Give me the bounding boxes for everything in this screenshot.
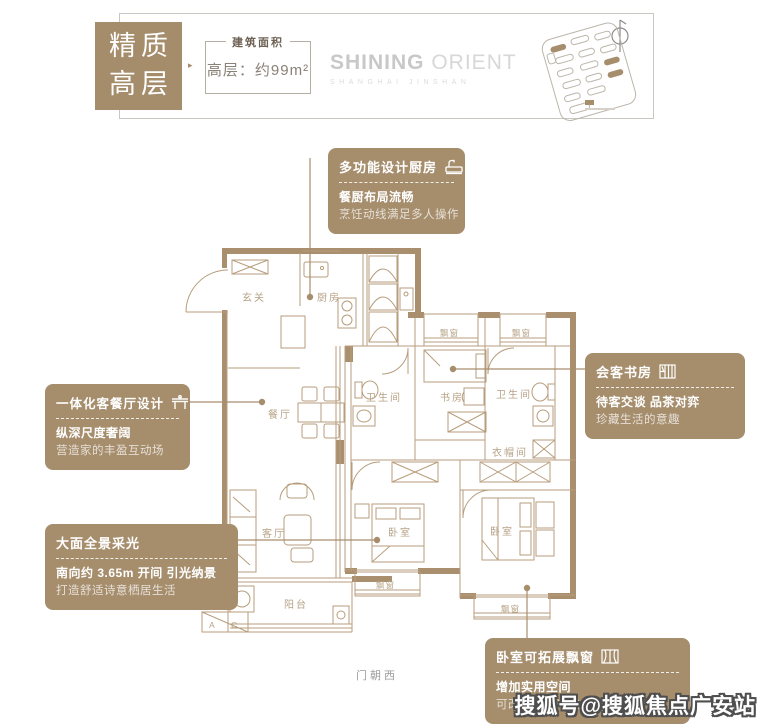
callout-living-bold: 纵深尺度奢阔 xyxy=(56,424,179,443)
ac-label-a: A xyxy=(209,620,216,630)
callout-daylight: 大面全景采光 南向约 3.65m 开间 引光纳景 打造舒适诗意栖居生活 xyxy=(45,524,238,610)
bay-window-label-4: 飘窗 xyxy=(501,604,520,614)
logo-bold: SHINING xyxy=(330,51,425,74)
bay-window-label-1: 飘窗 xyxy=(440,328,459,338)
callout-divider xyxy=(496,672,679,673)
callout-study-title-row: 会客书房 xyxy=(596,362,734,381)
callout-study-title: 会客书房 xyxy=(596,362,652,381)
ac-label-c: C xyxy=(231,620,238,630)
room-label-bath-right: 卫生间 xyxy=(496,388,532,401)
callout-study-light: 珍藏生活的意趣 xyxy=(596,412,734,429)
bookshelf-icon xyxy=(659,364,676,379)
room-label-bath-left: 卫生间 xyxy=(366,391,402,404)
room-label-bedroom-master: 卧室 xyxy=(490,525,514,538)
badge-line-1: 精质 xyxy=(104,28,173,66)
plan-partitions xyxy=(202,251,575,632)
callout-kitchen-light: 烹饪动线满足多人操作 xyxy=(339,207,454,224)
room-label-bedroom-mid: 卧室 xyxy=(388,526,412,539)
callout-kitchen-title-row: 多功能设计厨房 xyxy=(339,157,454,176)
room-label-dining: 餐厅 xyxy=(268,408,292,421)
logo-subtitle: SHANGHAI JINSHAN xyxy=(330,79,517,86)
bay-window-label-2: 飘窗 xyxy=(512,328,531,338)
room-label-cloakroom: 衣帽间 xyxy=(492,446,528,459)
badge-line-2: 高层 xyxy=(104,66,173,104)
bay-window-label-3: 飘窗 xyxy=(376,580,395,590)
arrow-icon: ▸ xyxy=(188,60,193,71)
bay-window-icon xyxy=(601,649,619,664)
plan-furniture xyxy=(230,256,555,624)
area-box: 建筑面积 高层：约99m² xyxy=(205,41,311,94)
room-label-kitchen: 厨房 xyxy=(317,291,341,304)
callout-bay-title: 卧室可拓展飘窗 xyxy=(496,647,594,666)
callout-divider xyxy=(56,558,227,559)
room-label-entry: 玄关 xyxy=(242,291,266,304)
area-value: 高层：约99m² xyxy=(206,59,310,80)
callout-kitchen-title: 多功能设计厨房 xyxy=(339,157,437,176)
room-label-study: 书房 xyxy=(440,391,464,404)
callout-divider xyxy=(56,418,179,419)
room-labels: 玄关 厨房 餐厅 客厅 阳台 书房 卫生间 卫生间 衣帽间 卧室 卧室 xyxy=(242,291,532,611)
callout-bay-title-row: 卧室可拓展飘窗 xyxy=(496,647,679,666)
room-label-living: 客厅 xyxy=(262,527,286,540)
area-label: 建筑面积 xyxy=(226,34,290,50)
sink-icon xyxy=(444,159,464,175)
bay-labels: 飘窗 飘窗 飘窗 飘窗 A C xyxy=(209,328,531,630)
callout-daylight-title-row: 大面全景采光 xyxy=(56,533,227,552)
callout-kitchen-bold: 餐厨布局流畅 xyxy=(339,188,454,207)
quality-badge: 精质 高层 xyxy=(95,22,182,110)
watermark: 搜狐号@搜狐焦点广安站 xyxy=(515,690,756,720)
callout-daylight-title: 大面全景采光 xyxy=(56,533,140,552)
callout-daylight-bold: 南向约 3.65m 开间 引光纳景 xyxy=(56,564,227,583)
callout-divider xyxy=(596,387,734,388)
callout-living-dining: 一体化客餐厅设计 纵深尺度奢阔 营造家的丰盈互动场 xyxy=(45,384,190,470)
brand-logo: SHINING ORIENT SHANGHAI JINSHAN xyxy=(330,52,517,86)
callout-living-title: 一体化客餐厅设计 xyxy=(56,393,164,412)
callout-living-title-row: 一体化客餐厅设计 xyxy=(56,393,179,412)
plan-doors xyxy=(186,270,514,518)
orientation-note: 门朝西 xyxy=(356,668,398,682)
callout-study: 会客书房 待客交谈 品茶对弈 珍藏生活的意趣 xyxy=(585,353,745,439)
table-icon xyxy=(171,395,189,410)
callout-living-light: 营造家的丰盈互动场 xyxy=(56,443,179,460)
logo-light: ORIENT xyxy=(425,51,517,74)
callout-daylight-light: 打造舒适诗意栖居生活 xyxy=(56,583,227,600)
callout-kitchen: 多功能设计厨房 餐厨布局流畅 烹饪动线满足多人操作 xyxy=(328,148,465,234)
callout-study-bold: 待客交谈 品茶对弈 xyxy=(596,393,734,412)
callout-divider xyxy=(339,182,454,183)
logo-main: SHINING ORIENT xyxy=(330,52,517,73)
room-label-balcony: 阳台 xyxy=(284,598,308,611)
